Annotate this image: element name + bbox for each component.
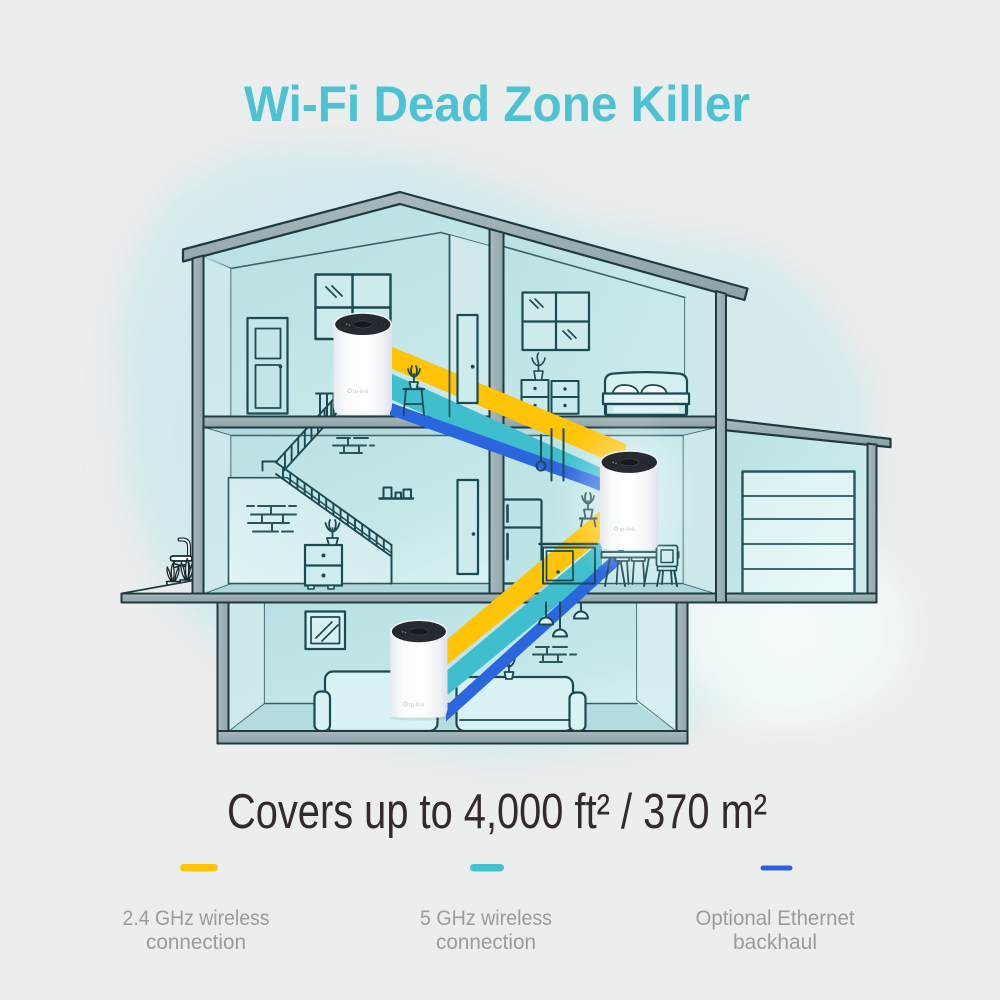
svg-text:tp-link: tp-link	[353, 389, 369, 395]
svg-text:5 GHz wireless: 5 GHz wireless	[420, 907, 552, 930]
svg-text:tp-link: tp-link	[409, 703, 425, 709]
svg-text:2.4 GHz wireless: 2.4 GHz wireless	[123, 907, 270, 930]
svg-text:Covers up to 4,000 ft² / 370 m: Covers up to 4,000 ft² / 370 m²	[227, 785, 767, 839]
svg-text:backhaul: backhaul	[733, 931, 817, 954]
svg-text:Wi-Fi Dead Zone Killer: Wi-Fi Dead Zone Killer	[244, 76, 750, 132]
svg-text:Optional Ethernet: Optional Ethernet	[696, 907, 855, 930]
svg-text:tp-link: tp-link	[620, 527, 636, 533]
svg-text:connection: connection	[436, 931, 536, 954]
svg-text:connection: connection	[146, 931, 246, 954]
